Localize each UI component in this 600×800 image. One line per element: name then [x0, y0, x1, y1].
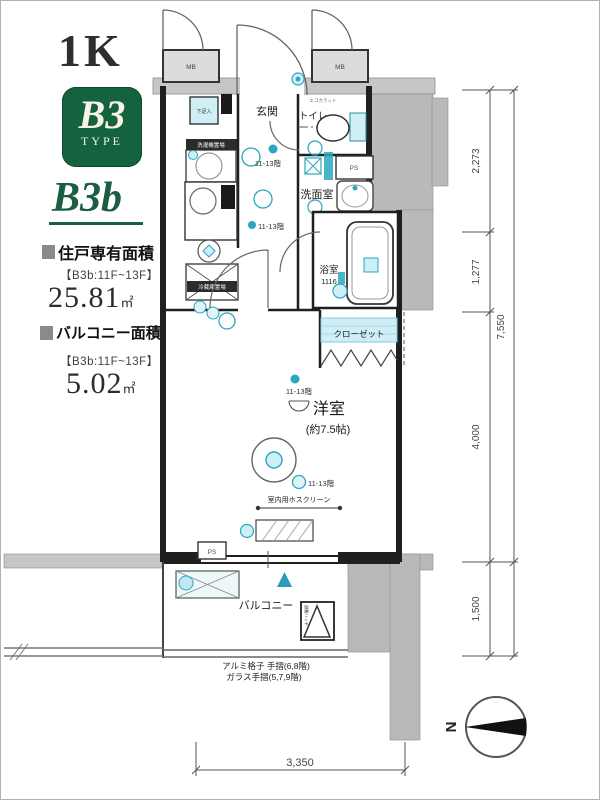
- screen-note-label: 室内用ホスクリーン: [268, 495, 331, 504]
- wall-fixture-icon: [289, 401, 309, 411]
- closet: クローゼット: [321, 318, 397, 366]
- rail-note-1: アルミ格子 手摺(6,8階): [222, 661, 310, 671]
- dim-label-7550: 7,550: [496, 314, 507, 339]
- hall-light-icons: [242, 145, 278, 230]
- living-size-label: (約7.5帖): [306, 422, 351, 436]
- pipe-space-label: PS: [208, 549, 217, 556]
- shoebox-label: 下足入: [196, 109, 211, 115]
- room-label-washroom: 洗面室: [301, 187, 334, 201]
- room-light-icon: [293, 476, 306, 489]
- air-conditioner-icon: [241, 520, 314, 541]
- dim-label-2273: 2,273: [471, 148, 482, 173]
- washer-space-label: 洗濯機置場: [197, 141, 225, 149]
- bathtub-icon: [347, 222, 393, 304]
- floor-note-3: 11-13階: [286, 386, 313, 396]
- entrance-doorbell-icon: [292, 73, 304, 85]
- room-label-closet: クローゼット: [333, 329, 384, 339]
- toilet-wall-panel-label: エコカラット: [310, 98, 337, 104]
- dim-label-3350: 3,350: [286, 757, 314, 769]
- compass-icon: N: [443, 697, 526, 757]
- pipe-space-label: PS: [350, 165, 359, 172]
- indoor-drying-screen: 室内用ホスクリーン: [256, 495, 342, 510]
- room-light-icon: [219, 313, 235, 329]
- pipe-space-icon: PS: [198, 542, 226, 559]
- ceiling-hook-icon: [252, 438, 296, 482]
- meter-box-label: MB: [186, 64, 196, 71]
- door-panel-icon: [221, 94, 232, 114]
- room-light-icon: [291, 375, 300, 384]
- room-label-bathroom: 浴室: [319, 264, 338, 276]
- room-label-balcony: バルコニー: [239, 599, 294, 612]
- meter-box-left: MB: [163, 50, 219, 82]
- hatch-label: 避難ハッチ: [303, 605, 310, 626]
- floor-note-2: 11-13階: [258, 221, 285, 231]
- washer-space-icon: 洗濯機置場: [186, 139, 237, 182]
- kitchen-sink-icon: [185, 182, 237, 262]
- balcony: バルコニー 避難ハッチ アルミ格子 手摺(6,8階) ガラス手摺(5,7,9階): [4, 562, 348, 682]
- floorplan-page: 1K B3 TYPE B3b 住戸専有面積 【B3b:11F~13F】 25.8…: [0, 0, 600, 800]
- pipe-space-icon: PS: [336, 156, 373, 179]
- evacuation-hatch-icon: 避難ハッチ: [301, 602, 334, 640]
- rail-note-2: ガラス手摺(5,7,9階): [226, 672, 302, 682]
- vanity-icon: [337, 181, 373, 211]
- balcony-access-marker-icon: [277, 572, 292, 587]
- floor-note-1: 11-13階: [255, 158, 282, 168]
- dim-label-4000: 4,000: [471, 424, 482, 449]
- outdoor-unit-icon: [176, 571, 239, 598]
- floorplan-drawing: MB MB 玄: [0, 0, 600, 800]
- washbasin-icon: [305, 141, 333, 214]
- compass-north-label: N: [443, 722, 460, 733]
- shoebox-icon: 下足入: [190, 97, 218, 124]
- bathroom-size-label: 1116: [321, 277, 337, 286]
- dim-label-1500: 1,500: [471, 596, 482, 621]
- floor-note-4: 11-13階: [308, 478, 335, 488]
- folding-door-icon: [321, 350, 397, 366]
- meter-box-label: MB: [335, 64, 345, 71]
- room-label-living: 洋室: [313, 400, 345, 418]
- meter-box-right: MB: [312, 50, 368, 82]
- room-label-entrance: 玄関: [256, 104, 278, 118]
- dim-label-1277: 1,277: [471, 259, 482, 284]
